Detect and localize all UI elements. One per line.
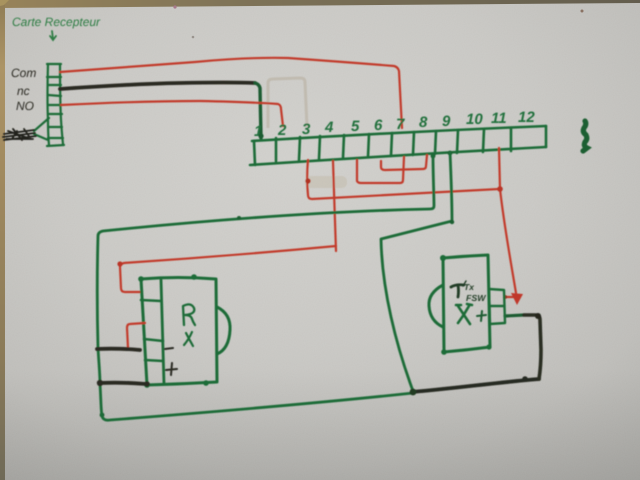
svg-text:NO: NO xyxy=(16,99,34,113)
svg-text:12: 12 xyxy=(518,109,535,126)
svg-text:Carte Recepteur: Carte Recepteur xyxy=(12,15,101,29)
svg-text:6: 6 xyxy=(374,117,383,134)
svg-text:11: 11 xyxy=(491,110,507,127)
svg-text:5: 5 xyxy=(351,118,360,135)
svg-text:Tx: Tx xyxy=(464,282,475,292)
svg-text:Com: Com xyxy=(11,66,36,80)
svg-text:8: 8 xyxy=(419,114,428,131)
svg-text:9: 9 xyxy=(442,113,451,130)
svg-text:10: 10 xyxy=(466,111,483,128)
svg-text:4: 4 xyxy=(324,119,334,136)
svg-text:FSW: FSW xyxy=(466,293,486,303)
svg-text:2: 2 xyxy=(277,122,287,139)
svg-text:3: 3 xyxy=(302,121,311,138)
svg-text:7: 7 xyxy=(396,116,405,133)
svg-text:nc: nc xyxy=(17,84,30,98)
